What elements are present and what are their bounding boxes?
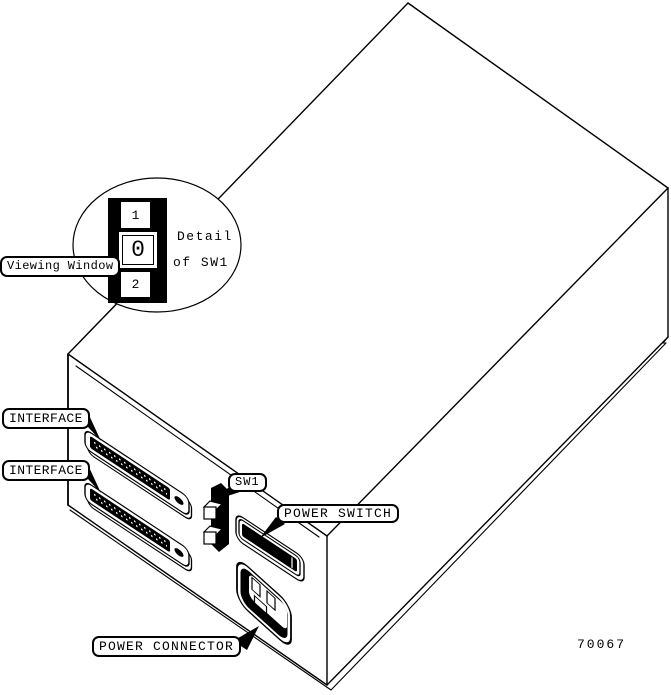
sw1-key-bottom: [204, 532, 216, 544]
sw1-position-middle: 0: [122, 235, 154, 265]
enclosure-outline: [68, 3, 668, 690]
sw1-position-bottom: 2: [121, 272, 150, 297]
callout-power-switch: POWER SWITCH: [277, 504, 399, 523]
connector-slot: [90, 436, 170, 501]
edge-right-front: [327, 188, 668, 536]
isometric-rear-panel-figure: 1 0 2 Detail of SW1 Viewing Window INTER…: [0, 0, 671, 695]
sw1-detail-body: 1 0 2: [108, 198, 167, 303]
figure-number: 70067: [577, 637, 626, 652]
sw1-position-top: 1: [121, 202, 150, 228]
callout-interface-bottom: INTERFACE: [2, 460, 90, 481]
edge-panel-bottom-flange: [70, 510, 331, 690]
line-art-canvas: [0, 0, 671, 695]
edge-panel-bottom: [68, 505, 327, 685]
callout-viewing-window: Viewing Window: [0, 256, 120, 277]
flange-corner-notch: [663, 337, 668, 343]
callout-interface-top: INTERFACE: [2, 408, 90, 429]
callout-power-connector: POWER CONNECTOR: [92, 636, 241, 657]
connector-slot: [90, 488, 170, 553]
sw1-viewing-window: 0: [119, 232, 157, 268]
callout-sw1: SW1: [228, 473, 267, 492]
edge-top-right: [408, 3, 668, 188]
sw1-key-top: [204, 507, 216, 519]
detail-caption-line2: of SW1: [173, 255, 229, 270]
detail-caption-line1: Detail: [177, 229, 233, 244]
